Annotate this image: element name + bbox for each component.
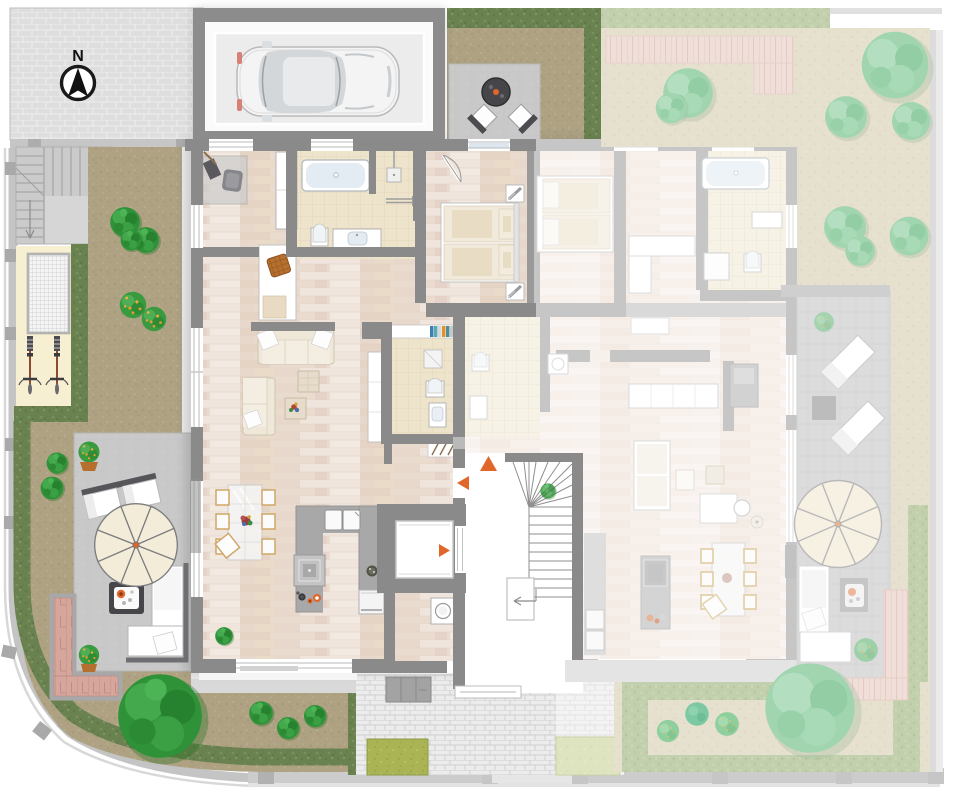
svg-text:N: N xyxy=(72,48,84,65)
